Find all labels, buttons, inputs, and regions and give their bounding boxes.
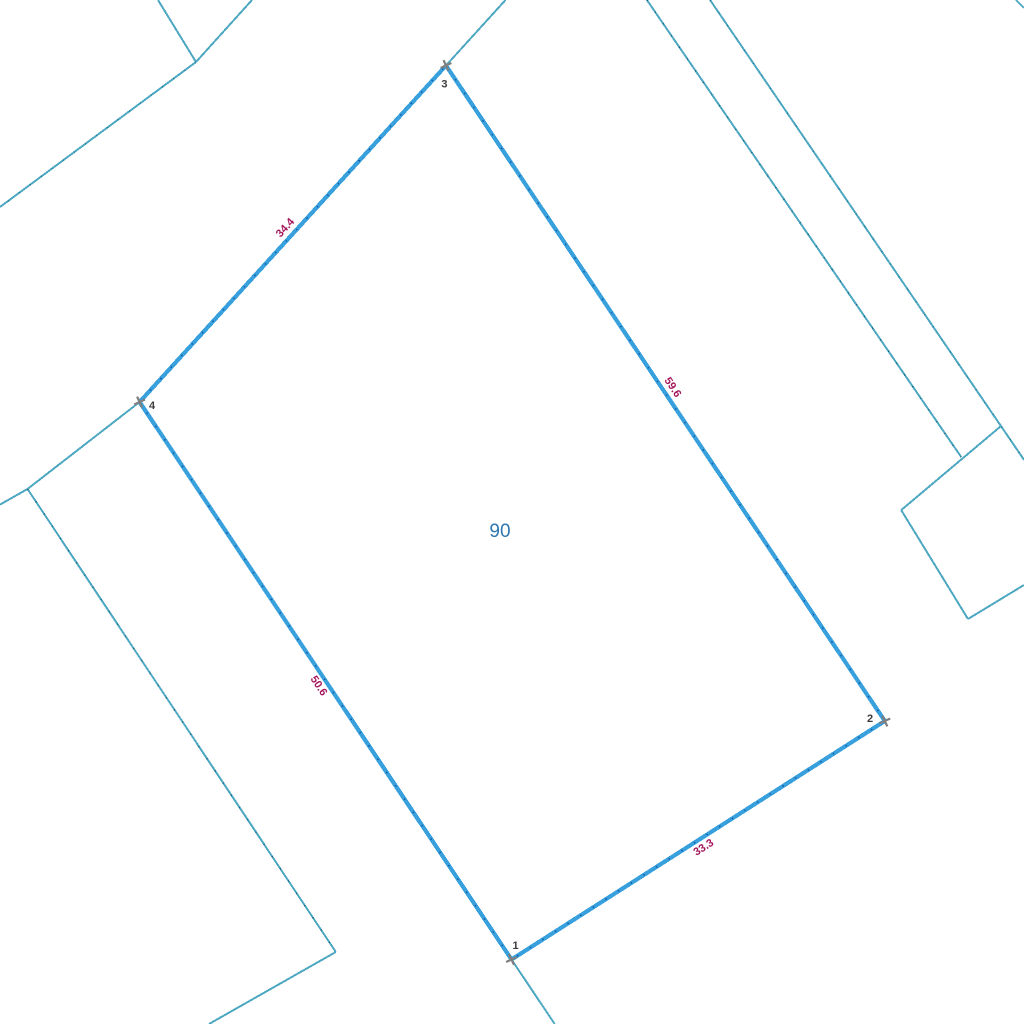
svg-text:3: 3 (441, 78, 447, 90)
svg-text:4: 4 (149, 400, 156, 412)
svg-text:1: 1 (513, 940, 519, 952)
svg-text:2: 2 (867, 713, 873, 725)
svg-text:90: 90 (489, 521, 510, 542)
